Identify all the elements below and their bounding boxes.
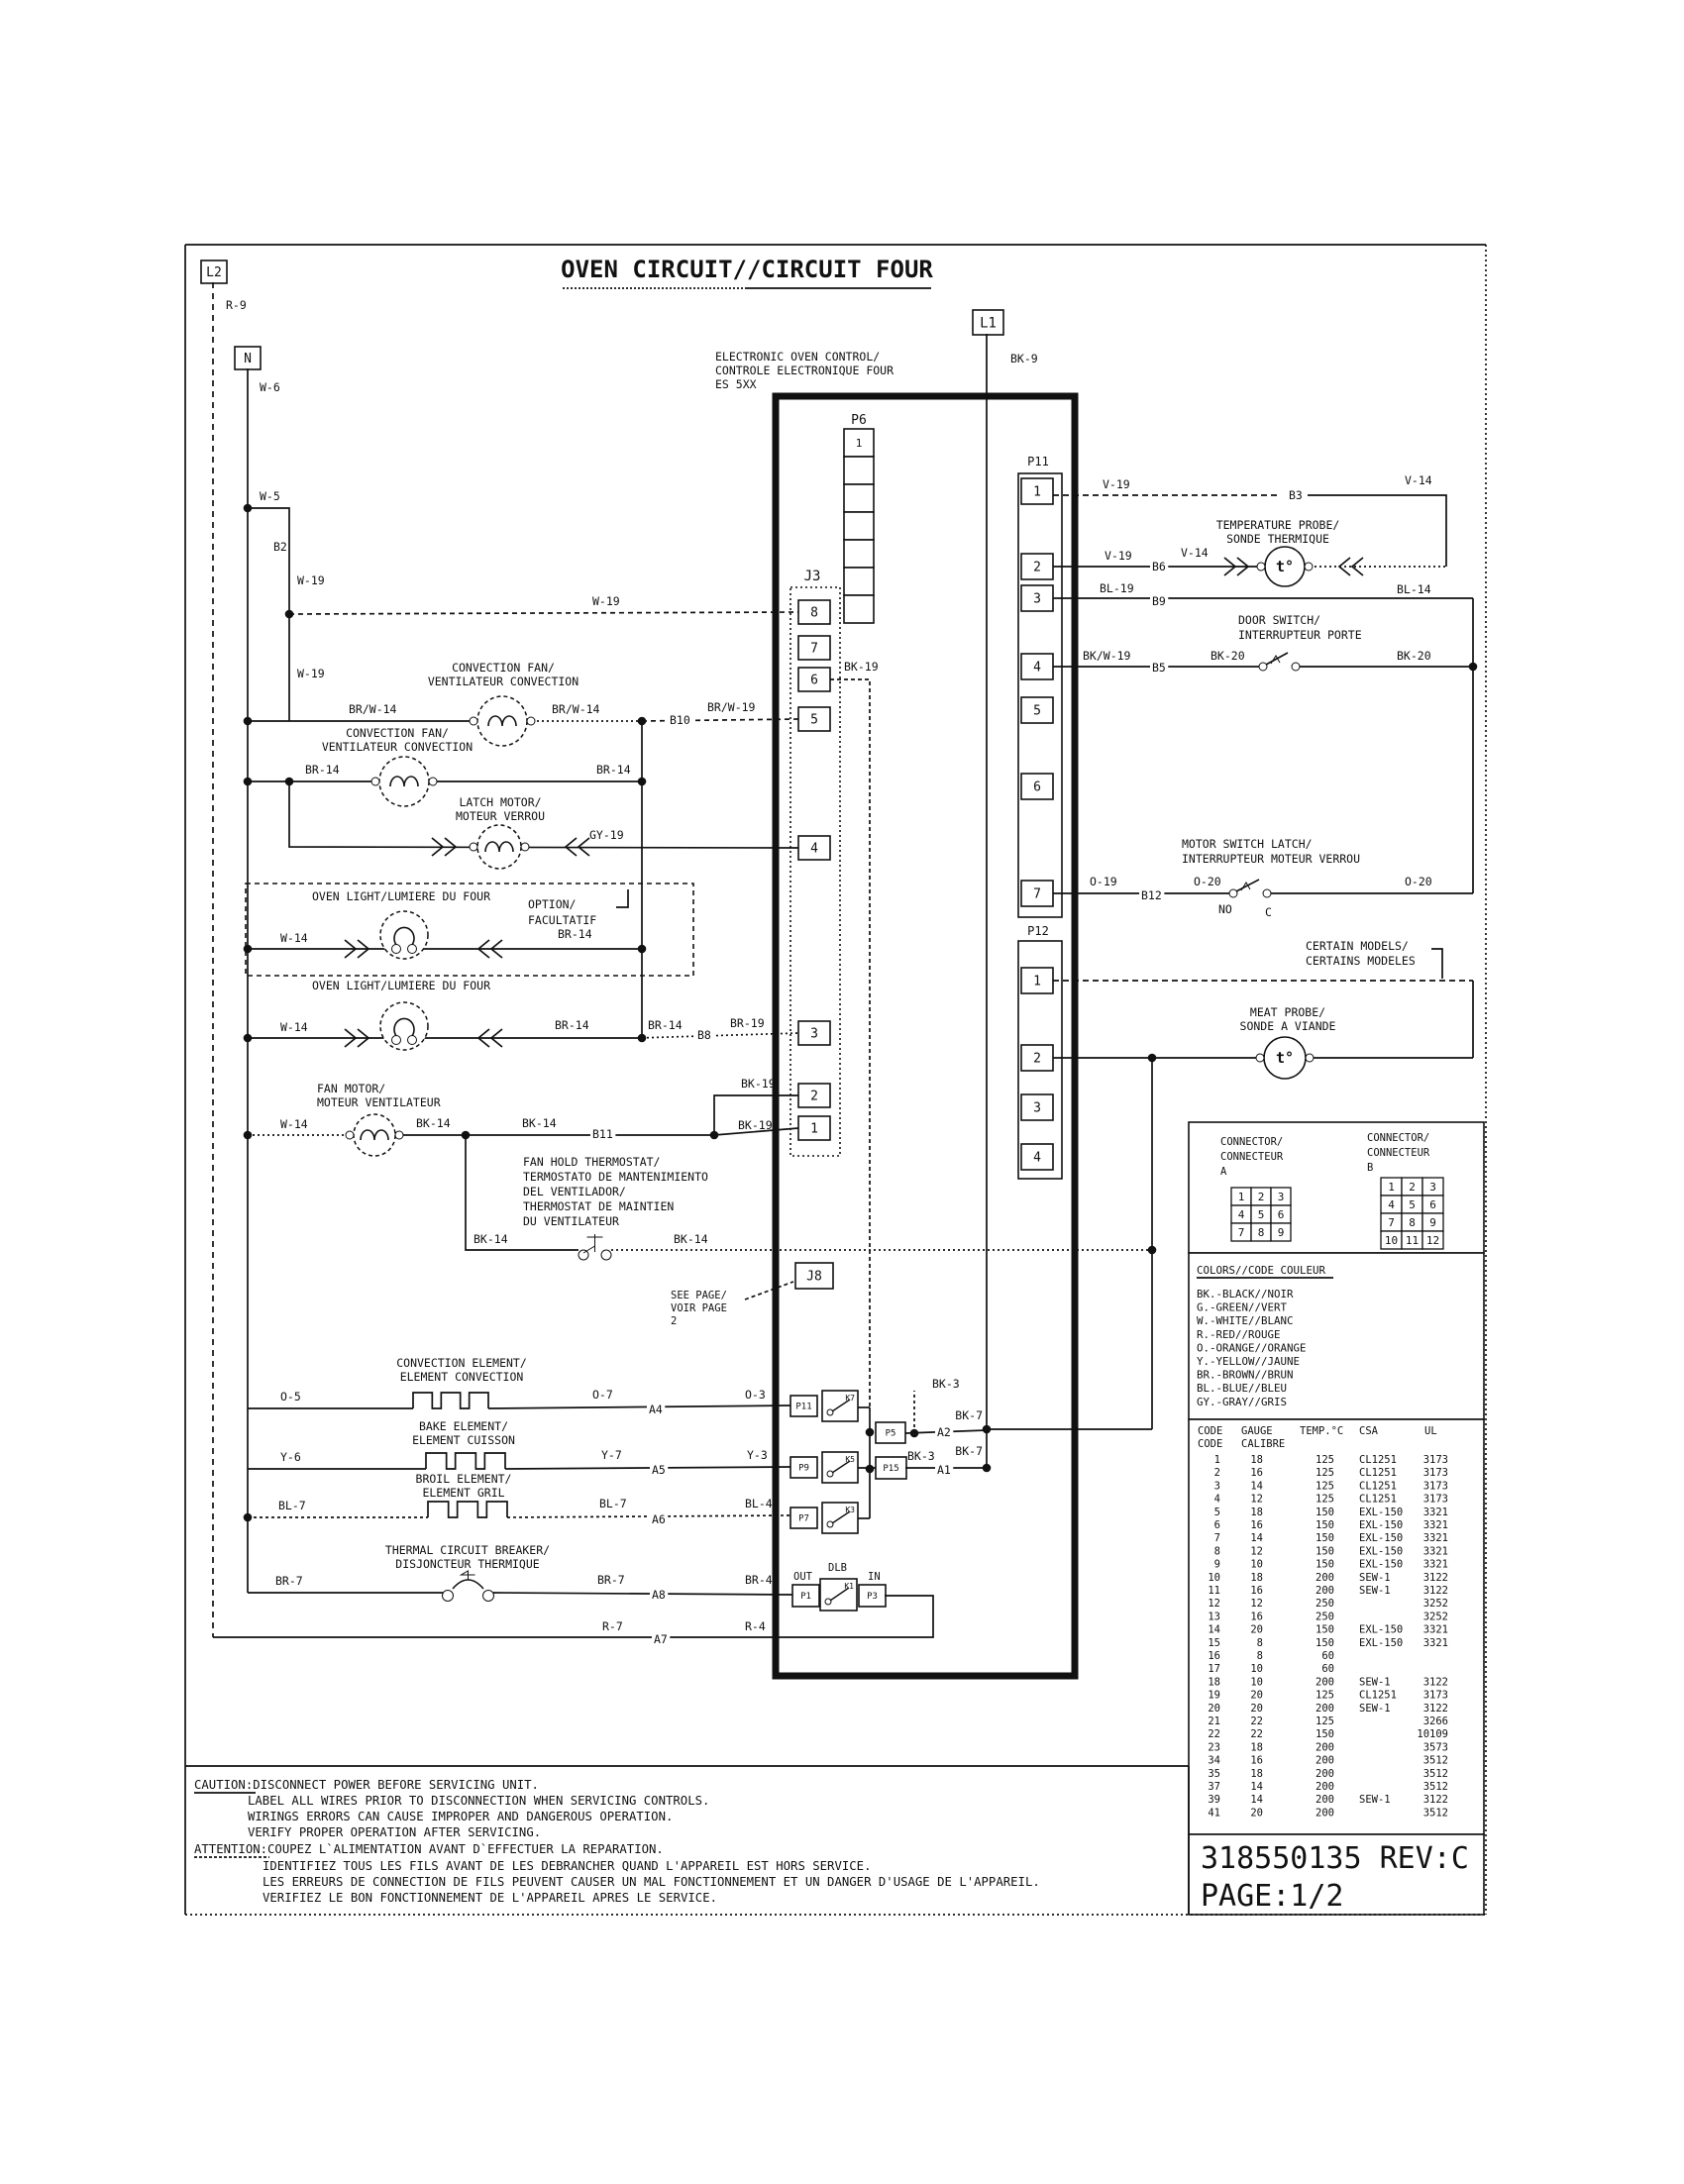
wire-table-temp: 200 [1316, 1741, 1334, 1753]
wire-table-temp: 150 [1316, 1624, 1334, 1636]
junction-dot [244, 1131, 253, 1140]
wire-label: GY-19 [589, 828, 624, 842]
wire-label: A5 [652, 1463, 666, 1477]
br7-a8-wire [493, 1593, 792, 1595]
p3-relay-pin-label: P3 [867, 1592, 878, 1602]
wire-table-ul: 3173 [1423, 1690, 1448, 1702]
wire-table-code: 39 [1208, 1794, 1220, 1806]
bake-element-coil [426, 1453, 505, 1469]
wire-label: B11 [592, 1127, 613, 1141]
color-code: BL.-BLUE//BLEU [1197, 1382, 1287, 1395]
wire-table-gauge: 10 [1250, 1676, 1263, 1688]
convection-fan-2-terminal [371, 778, 379, 785]
wire-table-code: 16 [1208, 1650, 1220, 1662]
door-switch-lever [1266, 653, 1288, 665]
p11-pin-5-label: 5 [1033, 704, 1041, 719]
connector-chevron [1352, 558, 1363, 575]
wire-label: DU VENTILATEUR [523, 1214, 619, 1228]
caution-line: WIRINGS ERRORS CAN CAUSE IMPROPER AND DA… [248, 1810, 673, 1823]
latch-motor-terminal [470, 843, 477, 851]
p15-pin-label: P15 [883, 1464, 898, 1474]
wire-label: BR/W-19 [707, 700, 756, 714]
wire-label: OUT [793, 1571, 813, 1583]
junction-dot [462, 1131, 471, 1140]
wire-table-gauge: 16 [1250, 1467, 1263, 1479]
control-label-1: ELECTRONIC OVEN CONTROL/ [715, 350, 880, 364]
wire-table-ul: 3122 [1423, 1794, 1448, 1806]
wire-table-gauge: 8 [1257, 1637, 1263, 1649]
oven-light-1 [380, 911, 428, 959]
wire-table-ul: 3512 [1423, 1807, 1448, 1819]
p11-pin-3-label: 3 [1033, 592, 1041, 607]
wire-table-temp: 150 [1316, 1519, 1334, 1531]
connector-b-grid-cell: 11 [1406, 1234, 1419, 1247]
connector-b-grid-cell: 12 [1426, 1234, 1439, 1247]
connector-a-title: CONNECTOR/ [1220, 1136, 1283, 1148]
p11-label: P11 [1027, 455, 1049, 468]
wire-label: SONDE A VIANDE [1240, 1019, 1336, 1033]
junction-dot [638, 1034, 647, 1043]
wire-label: BR-7 [597, 1573, 625, 1587]
wire-table-temp: 200 [1316, 1572, 1334, 1584]
wire-table-csa: SEW-1 [1359, 1676, 1391, 1688]
connector-b-grid-cell: 8 [1409, 1216, 1416, 1229]
wire-label: THERMAL CIRCUIT BREAKER/ [385, 1543, 550, 1557]
diagram-title: OVEN CIRCUIT//CIRCUIT FOUR [561, 256, 933, 283]
wire-label: O-3 [745, 1388, 766, 1402]
wire-table-temp: 125 [1316, 1467, 1334, 1479]
wire-table-csa: SEW-1 [1359, 1794, 1391, 1806]
wire-table-gauge: 14 [1250, 1480, 1263, 1492]
caution-line: VERIFIEZ LE BON FONCTIONNEMENT DE L'APPA… [263, 1891, 717, 1905]
wire-label: O-20 [1194, 875, 1221, 888]
wire-table-csa: SEW-1 [1359, 1585, 1391, 1597]
wire-label: B6 [1152, 560, 1166, 573]
convection-element-coil [413, 1393, 488, 1408]
w19-to-j3-8 [289, 612, 798, 614]
wire-label: BAKE ELEMENT/ [419, 1419, 508, 1433]
wire-table-gauge: 22 [1250, 1728, 1263, 1740]
wire-label: DEL VENTILADOR/ [523, 1185, 626, 1198]
wire-table-ul: 3321 [1423, 1637, 1448, 1649]
latch-motor [477, 825, 521, 869]
junction-dot [983, 1464, 992, 1473]
connector-b-grid-cell: 2 [1409, 1181, 1416, 1194]
broil-element-coil [428, 1502, 507, 1517]
wire-label: BL-19 [1100, 581, 1134, 595]
j3-label: J3 [804, 569, 821, 584]
wire-table-temp: 125 [1316, 1716, 1334, 1727]
p6-cell-3 [844, 484, 874, 512]
fan-motor-terminal [346, 1131, 354, 1139]
wire-table-ul: 3122 [1423, 1585, 1448, 1597]
wire-table-gauge: 18 [1250, 1454, 1263, 1466]
wire-table-ul: 3173 [1423, 1467, 1448, 1479]
wire-table-code: 1 [1214, 1454, 1220, 1466]
wire-table-ul: 3512 [1423, 1768, 1448, 1780]
wire-table-gauge: 18 [1250, 1507, 1263, 1518]
p11-pin-6-label: 6 [1033, 780, 1041, 795]
temperature-probe-terminal [1305, 563, 1313, 571]
wire-table-temp: 200 [1316, 1807, 1334, 1819]
junction-dot [244, 717, 253, 726]
wire-table-gauge: 12 [1250, 1545, 1263, 1557]
wire-table-gauge: 20 [1250, 1690, 1263, 1702]
caution-line: LABEL ALL WIRES PRIOR TO DISCONNECTION W… [248, 1794, 709, 1808]
wire-table-header: CODE [1198, 1438, 1222, 1450]
wire-label: BR-14 [648, 1018, 683, 1032]
wire-label: BL-4 [745, 1497, 773, 1510]
temperature-probe-terminal [1257, 563, 1265, 571]
wire-label: BK-14 [522, 1116, 557, 1130]
wire-label: B12 [1141, 888, 1162, 902]
wire-label: BR-14 [596, 763, 631, 777]
wire-label: BR-7 [275, 1574, 303, 1588]
latch-motor-terminal [521, 843, 529, 851]
control-label-2: CONTROLE ELECTRONIQUE FOUR [715, 364, 894, 377]
wire-label: W-5 [260, 489, 280, 503]
wire-table-gauge: 14 [1250, 1532, 1263, 1544]
p6-label: P6 [851, 413, 867, 428]
wire-table-ul: 3122 [1423, 1676, 1448, 1688]
wire-table-csa: CL1251 [1359, 1454, 1397, 1466]
j3-pin-7-label: 7 [810, 642, 818, 657]
wire-table-gauge: 8 [1257, 1650, 1263, 1662]
meat-probe-terminal [1256, 1054, 1264, 1062]
wire-label: B10 [670, 713, 690, 727]
wire-label: V-19 [1103, 477, 1130, 491]
convection-fan-1-terminal [470, 717, 477, 725]
wire-table-csa: CL1251 [1359, 1494, 1397, 1506]
connector-a-grid-cell: 8 [1258, 1226, 1265, 1239]
wire-label: BR-14 [558, 927, 592, 941]
wire-table-code: 21 [1208, 1716, 1220, 1727]
wire-label: VOIR PAGE [671, 1302, 727, 1314]
j3-pin-3-label: 3 [810, 1027, 818, 1042]
wire-label: C [1265, 905, 1272, 919]
p11-pin-7-label: 7 [1033, 887, 1041, 902]
junction-dot [638, 945, 647, 954]
j3-pin-1-label: 1 [810, 1122, 818, 1137]
wire-label: R-4 [745, 1619, 766, 1633]
wire-label: MOTOR SWITCH LATCH/ [1182, 837, 1313, 851]
wire-table-temp: 125 [1316, 1494, 1334, 1506]
color-code: R.-RED//ROUGE [1197, 1328, 1281, 1341]
wire-table-gauge: 16 [1250, 1755, 1263, 1767]
connector-b-grid-cell: 9 [1429, 1216, 1436, 1229]
wire-label: BR-14 [555, 1018, 589, 1032]
wire-label: INTERRUPTEUR MOTEUR VERROU [1182, 852, 1360, 866]
wire-label: BR-19 [730, 1016, 765, 1030]
p12-pin-3-label: 3 [1033, 1101, 1041, 1116]
p7-relay-pin-label: P7 [798, 1514, 809, 1524]
wire-label: SONDE THERMIQUE [1226, 532, 1329, 546]
meat-probe-symbol: t° [1276, 1049, 1294, 1067]
wire-table-code: 20 [1208, 1703, 1220, 1715]
wire-label: BK-20 [1397, 649, 1431, 663]
motor-switch-latch-terminal [1263, 889, 1271, 897]
junction-dot [244, 1034, 253, 1043]
wire-label: OPTION/ [528, 897, 577, 911]
wire-table-gauge: 12 [1250, 1494, 1263, 1506]
wire-table-temp: 200 [1316, 1676, 1334, 1688]
wire-table-csa: EXL-150 [1359, 1637, 1403, 1649]
junction-dot [866, 1428, 875, 1437]
y7-a5-wire [505, 1467, 790, 1469]
connector-b-grid-cell: 10 [1385, 1234, 1398, 1247]
connector-a-grid-cell: 5 [1258, 1208, 1265, 1221]
wire-table-temp: 150 [1316, 1545, 1334, 1557]
junction-dot [285, 610, 294, 619]
wire-label: CERTAIN MODELS/ [1306, 939, 1409, 953]
wire-label: THERMOSTAT DE MAINTIEN [523, 1199, 674, 1213]
wire-table-gauge: 10 [1250, 1663, 1263, 1675]
junction-dot [244, 504, 253, 513]
connector-a-grid-cell: 1 [1238, 1191, 1245, 1203]
thermal-circuit-breaker-terminal [483, 1591, 494, 1602]
relay-k3-label: K3 [845, 1506, 855, 1514]
wire-table-ul: 3321 [1423, 1507, 1448, 1518]
wire-label: BR-4 [745, 1573, 773, 1587]
wire-label: V-19 [1105, 549, 1132, 563]
p12-pin-1-label: 1 [1033, 975, 1041, 989]
wire-table-temp: 125 [1316, 1454, 1334, 1466]
wire-label: B3 [1289, 488, 1303, 502]
junction-dot [244, 945, 253, 954]
wire-label: O-5 [280, 1390, 301, 1404]
wire-table-code: 22 [1208, 1728, 1220, 1740]
wire-label: A7 [654, 1632, 668, 1646]
wire-label: BL-14 [1397, 582, 1431, 596]
junction-dot [1148, 1246, 1157, 1255]
oven-light-2-terminal [392, 1036, 401, 1045]
wire-table-ul: 3252 [1423, 1598, 1448, 1610]
wire-label: BK/W-19 [1083, 649, 1131, 663]
wire-label: BK-7 [955, 1408, 983, 1422]
p6-cell-5 [844, 540, 874, 568]
connector-a-grid-cell: 4 [1238, 1208, 1245, 1221]
junction-dot [244, 778, 253, 786]
wire-table-header: CODE [1198, 1425, 1222, 1437]
p11-pin-2-label: 2 [1033, 561, 1041, 575]
p6-cell-1-label: 1 [856, 437, 863, 450]
wire-table-header: CSA [1359, 1425, 1379, 1437]
wire-table-code: 18 [1208, 1676, 1220, 1688]
wire-label: Y-7 [601, 1448, 622, 1462]
wire-label: W-19 [592, 594, 620, 608]
connector-b-grid-cell: 5 [1409, 1198, 1416, 1211]
caution-line: CAUTION:DISCONNECT POWER BEFORE SERVICIN… [194, 1778, 539, 1792]
wire-label: BK-3 [932, 1377, 960, 1391]
junction-dot [710, 1131, 719, 1140]
wire-table-temp: 150 [1316, 1559, 1334, 1571]
wire-table-temp: 150 [1316, 1532, 1334, 1544]
connector-a-grid-cell: 3 [1278, 1191, 1285, 1203]
wire-table-csa: EXL-150 [1359, 1519, 1403, 1531]
wire-table-temp: 200 [1316, 1585, 1334, 1597]
part-number: 318550135 REV:C [1201, 1841, 1469, 1876]
wire-table-ul: 3252 [1423, 1611, 1448, 1622]
wire-table-temp: 150 [1316, 1637, 1334, 1649]
wire-table-ul: 3512 [1423, 1781, 1448, 1793]
p6-cell-7 [844, 595, 874, 623]
connector-a-grid-cell: 9 [1278, 1226, 1285, 1239]
wire-table-gauge: 16 [1250, 1585, 1263, 1597]
wire-table-code: 6 [1214, 1519, 1220, 1531]
wire-label: B9 [1152, 594, 1166, 608]
p11-outline [1018, 473, 1062, 917]
wire-label: FACULTATIF [528, 913, 596, 927]
wire-table-ul: 3173 [1423, 1494, 1448, 1506]
colors-title: COLORS//CODE COULEUR [1197, 1264, 1326, 1277]
wire-label: Y-6 [280, 1450, 301, 1464]
p9-relay-pin-label: P9 [798, 1464, 809, 1474]
wire-label: IN [868, 1571, 881, 1583]
wire-label: V-14 [1181, 546, 1209, 560]
wire-table-code: 8 [1214, 1545, 1220, 1557]
wire-label: CONVECTION FAN/ [452, 661, 555, 675]
wire-table-temp: 200 [1316, 1794, 1334, 1806]
junction-dot [910, 1429, 919, 1438]
wire-table-temp: 250 [1316, 1611, 1334, 1622]
node-l2-label: L2 [206, 265, 222, 280]
fan-hold-thermostat-terminal [579, 1250, 588, 1260]
oven-light-1-terminal [408, 945, 417, 954]
connector-a-grid-cell: 7 [1238, 1226, 1245, 1239]
wire-label: BK-7 [955, 1444, 983, 1458]
wire-label: BK-14 [674, 1232, 708, 1246]
wire-label: MOTEUR VERROU [456, 809, 545, 823]
wire-table-ul: 3122 [1423, 1572, 1448, 1584]
wire-label: BK-19 [844, 660, 879, 674]
wire-label: A2 [937, 1425, 951, 1439]
wire-label: B8 [697, 1028, 711, 1042]
wire-table-gauge: 18 [1250, 1768, 1263, 1780]
wire-label: BK-9 [1010, 352, 1038, 365]
wire-table-gauge: 12 [1250, 1598, 1263, 1610]
wire-label: R-9 [226, 298, 247, 312]
convection-fan-2 [379, 757, 429, 806]
wire-label: BK-19 [741, 1077, 776, 1091]
junction-dot [1469, 663, 1478, 672]
oven-light-2 [380, 1002, 428, 1050]
wire-table-gauge: 18 [1250, 1572, 1263, 1584]
wire-table-gauge: 22 [1250, 1716, 1263, 1727]
wire-label: CERTAINS MODELES [1306, 954, 1416, 968]
wire-label: W-14 [280, 931, 308, 945]
p12-pin-4-label: 4 [1033, 1151, 1041, 1166]
wire-table-temp: 125 [1316, 1690, 1334, 1702]
wire-table-temp: 200 [1316, 1768, 1334, 1780]
relay-k1-dlb-label: K1 [844, 1582, 854, 1591]
wire-label: BR/W-14 [349, 702, 397, 716]
fan-hold-thermostat-lever [583, 1246, 595, 1253]
wire-label: OVEN LIGHT/LUMIERE DU FOUR [312, 979, 490, 992]
wire-table-ul: 3321 [1423, 1532, 1448, 1544]
wire-table-code: 15 [1208, 1637, 1220, 1649]
wire-label: DOOR SWITCH/ [1238, 613, 1320, 627]
certain-models-bracket [1431, 949, 1442, 979]
wire-label: CONVECTION FAN/ [346, 726, 449, 740]
wire-table-ul: 3266 [1423, 1716, 1448, 1727]
wire-label: V-14 [1405, 473, 1432, 487]
wire-label: R-7 [602, 1619, 623, 1633]
wire-table-header: TEMP.°C [1300, 1425, 1343, 1437]
j3-pin-5-label: 5 [810, 713, 818, 728]
schematic-page: OVEN CIRCUIT//CIRCUIT FOUR L2NL118765432… [0, 0, 1684, 2179]
wire-label: BR/W-14 [552, 702, 600, 716]
wire-table-temp: 60 [1321, 1650, 1334, 1662]
wire-table-gauge: 20 [1250, 1624, 1263, 1636]
color-code: G.-GREEN//VERT [1197, 1301, 1288, 1314]
wire-label: BK-3 [907, 1449, 935, 1463]
wire-table-temp: 200 [1316, 1781, 1334, 1793]
wire-table-ul: 3321 [1423, 1519, 1448, 1531]
caution-line: ATTENTION:COUPEZ L`ALIMENTATION AVANT D`… [194, 1842, 664, 1856]
wire-table-code: 37 [1208, 1781, 1220, 1793]
wire-table-ul: 3173 [1423, 1454, 1448, 1466]
fan-motor [354, 1114, 395, 1156]
j3-pin-6-label: 6 [810, 674, 818, 688]
wire-label: INTERRUPTEUR PORTE [1238, 628, 1362, 642]
wire-label: LATCH MOTOR/ [459, 795, 541, 809]
wire-label: BK-14 [416, 1116, 451, 1130]
connector-a-grid-cell: 2 [1258, 1191, 1265, 1203]
wire-label: DLB [828, 1562, 847, 1574]
thermal-circuit-breaker-tbar [462, 1571, 475, 1580]
j3-pin-4-label: 4 [810, 842, 818, 857]
wire-label: A8 [652, 1588, 666, 1602]
wire-label: BROIL ELEMENT/ [416, 1472, 512, 1486]
wire-table-csa: EXL-150 [1359, 1507, 1403, 1518]
wire-table-csa: EXL-150 [1359, 1532, 1403, 1544]
p12-pin-2-label: 2 [1033, 1052, 1041, 1067]
color-code: BR.-BROWN//BRUN [1197, 1369, 1294, 1382]
wire-label: B2 [273, 540, 287, 554]
wire-table-code: 12 [1208, 1598, 1220, 1610]
connector-a-title: CONNECTEUR [1220, 1151, 1284, 1163]
wire-table-code: 23 [1208, 1741, 1220, 1753]
wire-label: O-20 [1405, 875, 1432, 888]
wire-table-code: 13 [1208, 1611, 1220, 1622]
connector-a-grid-cell: 6 [1278, 1208, 1285, 1221]
wire-table-gauge: 10 [1250, 1559, 1263, 1571]
node-n-label: N [244, 352, 252, 366]
p1-relay-pin-label: P1 [800, 1592, 811, 1602]
control-label-3: ES 5XX [715, 377, 757, 391]
wire-label: A1 [937, 1463, 951, 1477]
junction-dot [638, 778, 647, 786]
wire-label: BK-19 [738, 1118, 773, 1132]
wire-label: OVEN LIGHT/LUMIERE DU FOUR [312, 889, 490, 903]
convection-fan-1-terminal [527, 717, 535, 725]
connector-b-grid-cell: 3 [1429, 1181, 1436, 1194]
p11-relay-pin-label: P11 [795, 1403, 811, 1412]
wire-label: Y-3 [747, 1448, 768, 1462]
door-switch-terminal [1292, 663, 1300, 671]
wire-label: VENTILATEUR CONVECTION [428, 675, 579, 688]
wire-table-temp: 250 [1316, 1598, 1334, 1610]
wire-table-gauge: 16 [1250, 1519, 1263, 1531]
connector-a-title: A [1220, 1166, 1227, 1178]
wire-label: MEAT PROBE/ [1250, 1005, 1325, 1019]
wire-table-temp: 200 [1316, 1703, 1334, 1715]
wire-table-ul: 3173 [1423, 1480, 1448, 1492]
wire-table-ul: 3122 [1423, 1703, 1448, 1715]
junction-dot [638, 717, 647, 726]
wire-table-header: GAUGE [1241, 1425, 1273, 1437]
wire-label: W-14 [280, 1020, 308, 1034]
